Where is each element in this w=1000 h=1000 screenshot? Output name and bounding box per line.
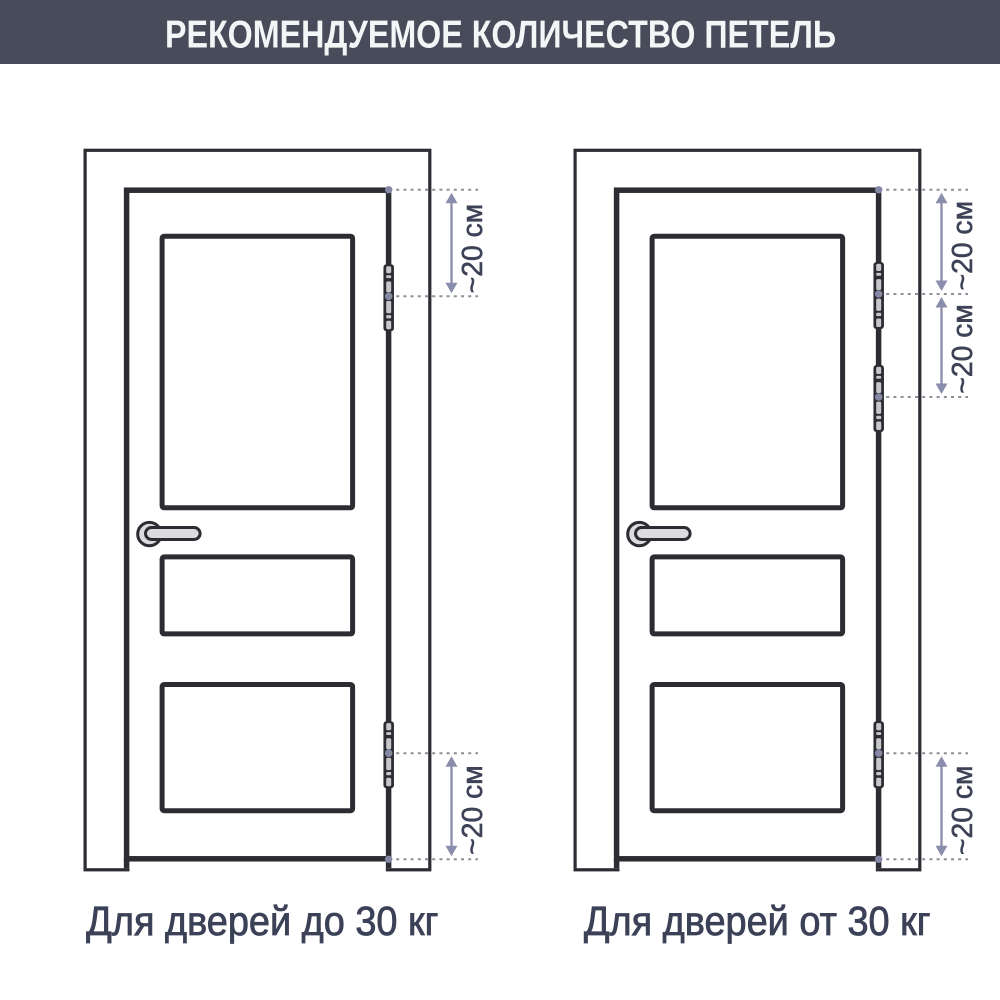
svg-text:~20 см: ~20 см	[946, 766, 978, 855]
svg-text:Для дверей от 30 кг: Для дверей от 30 кг	[584, 899, 931, 945]
svg-text:РЕКОМЕНДУЕМОЕ КОЛИЧЕСТВО ПЕТЕЛ: РЕКОМЕНДУЕМОЕ КОЛИЧЕСТВО ПЕТЕЛЬ	[165, 13, 836, 56]
svg-text:~20 см: ~20 см	[456, 765, 488, 854]
svg-text:~20 см: ~20 см	[456, 204, 488, 293]
svg-text:Для дверей до 30 кг: Для дверей до 30 кг	[86, 899, 438, 945]
svg-text:~20 см: ~20 см	[946, 201, 978, 290]
svg-text:~20 см: ~20 см	[946, 304, 978, 393]
